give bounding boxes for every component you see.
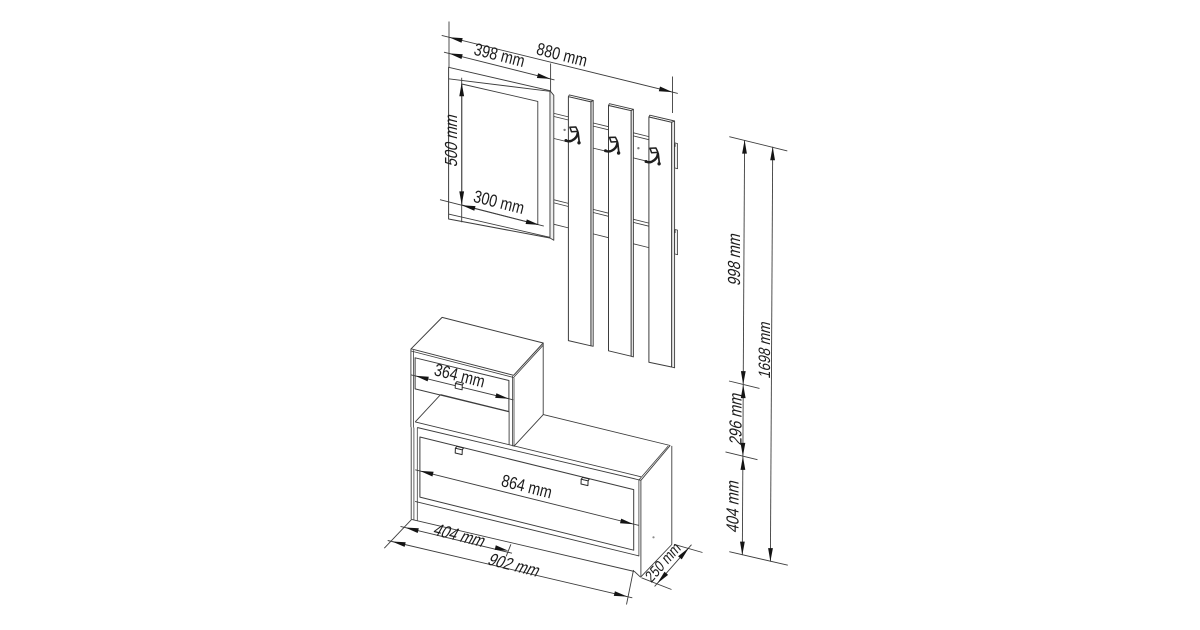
svg-text:998 mm: 998 mm [724,231,744,288]
svg-text:296 mm: 296 mm [726,390,746,447]
svg-text:1698 mm: 1698 mm [755,319,774,380]
svg-text:500 mm: 500 mm [441,112,461,169]
svg-text:404 mm: 404 mm [723,478,743,535]
